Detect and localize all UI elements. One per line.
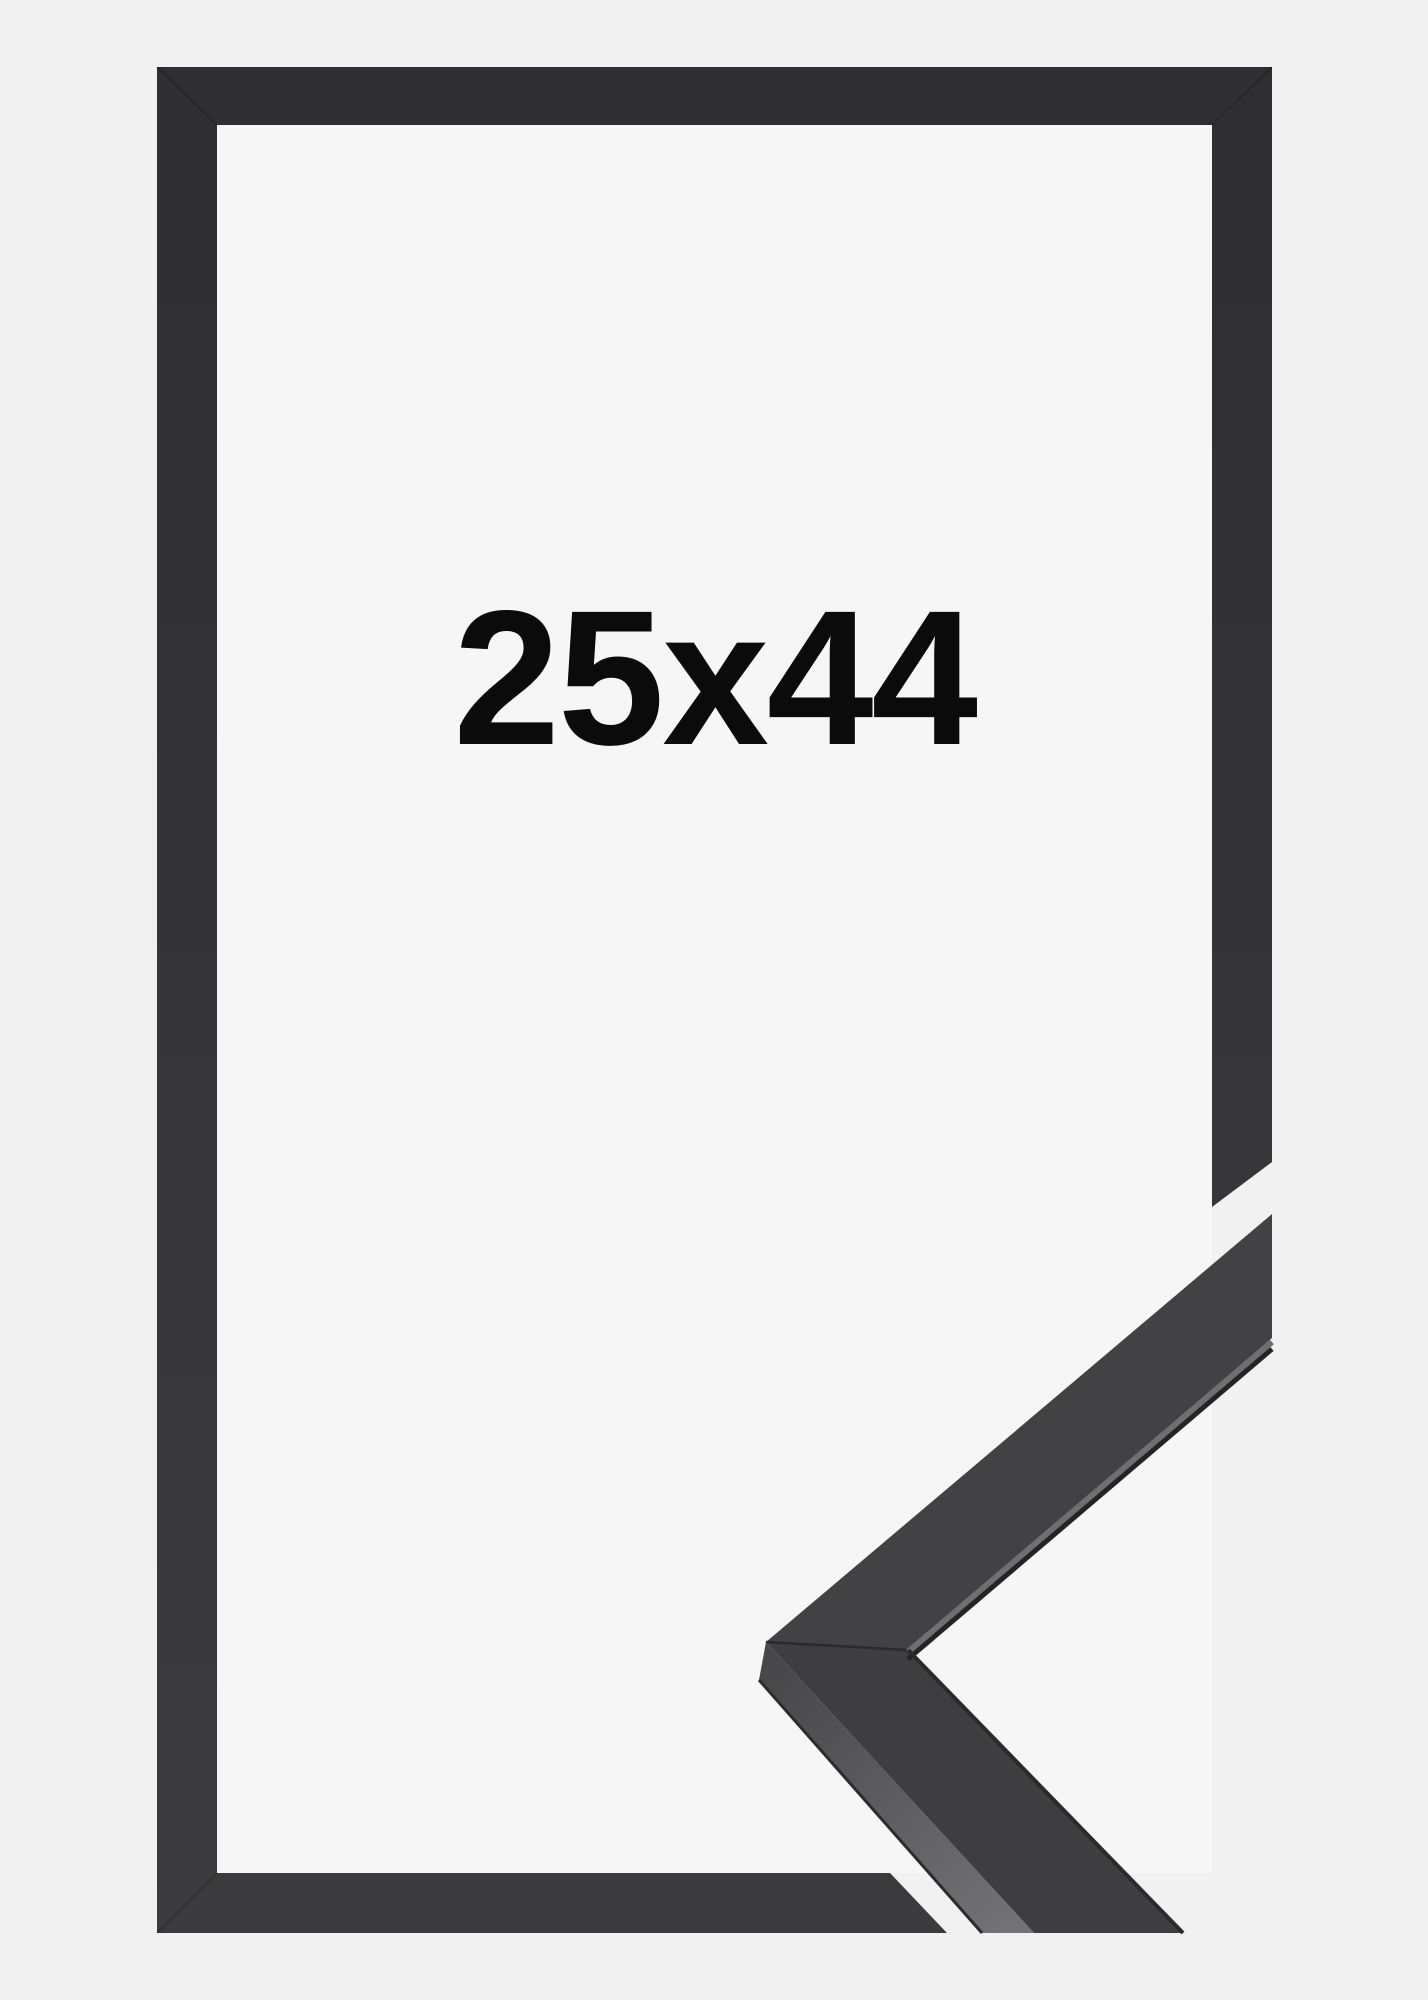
- frame-product-illustration: [0, 0, 1428, 2000]
- size-label: 25x44: [157, 582, 1272, 774]
- frame-interior: [217, 125, 1212, 1873]
- product-image-canvas: 25x44: [0, 0, 1428, 2000]
